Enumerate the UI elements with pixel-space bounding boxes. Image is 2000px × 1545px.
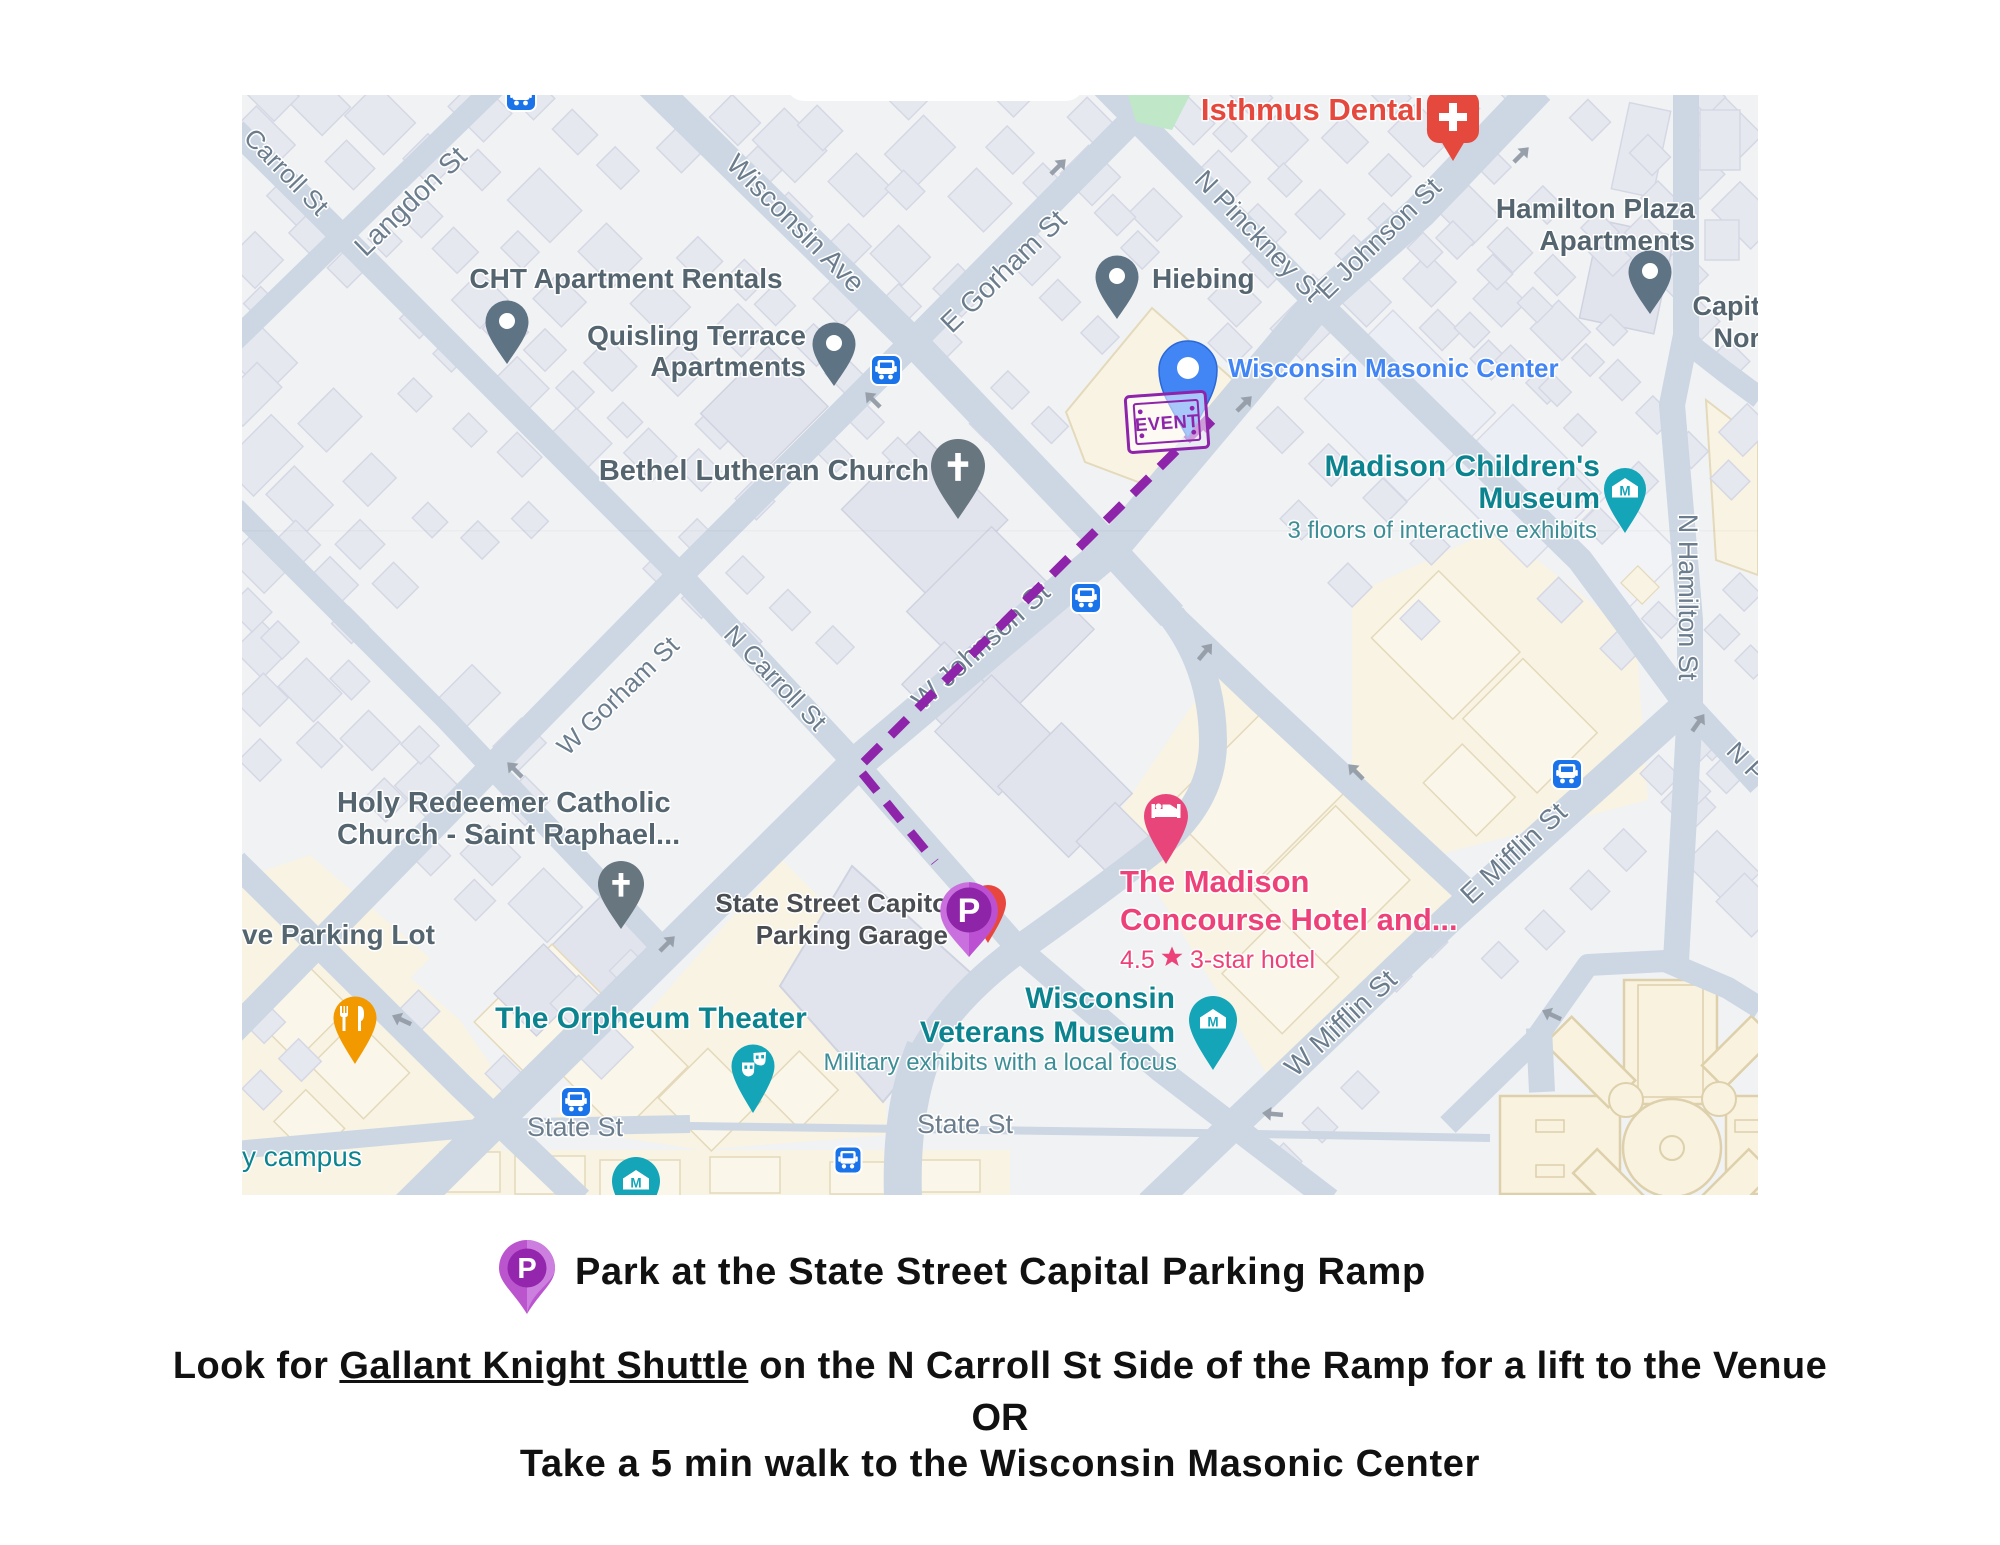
svg-text:Hamilton Plaza: Hamilton Plaza — [1496, 193, 1696, 224]
svg-text:State St: State St — [917, 1109, 1014, 1139]
svg-text:M: M — [1207, 1015, 1218, 1030]
svg-text:EVENT: EVENT — [1134, 410, 1200, 435]
svg-text:4.5: 4.5 — [1120, 946, 1155, 974]
svg-text:Holy Redeemer Catholic: Holy Redeemer Catholic — [337, 787, 671, 819]
svg-text:Wisconsin Masonic Center: Wisconsin Masonic Center — [1228, 353, 1559, 383]
svg-text:M: M — [1619, 484, 1630, 499]
svg-text:y campus: y campus — [242, 1141, 362, 1172]
svg-text:3 floors of interactive exhibi: 3 floors of interactive exhibits — [1288, 517, 1597, 544]
svg-text:Church - Saint Raphael...: Church - Saint Raphael... — [337, 819, 680, 851]
svg-text:Military exhibits with a local: Military exhibits with a local focus — [824, 1049, 1177, 1076]
svg-text:ve Parking Lot: ve Parking Lot — [242, 919, 435, 950]
svg-text:Museum: Museum — [1478, 482, 1600, 515]
svg-text:P: P — [958, 892, 981, 930]
svg-text:Capit: Capit — [1693, 291, 1759, 321]
svg-text:Apartments: Apartments — [1539, 225, 1695, 256]
svg-text:Isthmus Dental: Isthmus Dental — [1201, 95, 1423, 127]
svg-text:Quisling Terrace: Quisling Terrace — [587, 320, 806, 351]
svg-text:Veterans Museum: Veterans Museum — [920, 1016, 1175, 1049]
svg-text:Apartments: Apartments — [650, 351, 806, 382]
svg-text:Madison Children's: Madison Children's — [1325, 450, 1601, 483]
svg-text:Wisconsin: Wisconsin — [1025, 982, 1175, 1015]
svg-text:3-star hotel: 3-star hotel — [1190, 946, 1315, 974]
svg-text:M: M — [630, 1176, 641, 1191]
svg-text:Parking Garage: Parking Garage — [756, 920, 948, 950]
svg-text:Hiebing: Hiebing — [1152, 263, 1255, 294]
svg-text:The Madison: The Madison — [1120, 864, 1309, 899]
svg-text:CHT Apartment Rentals: CHT Apartment Rentals — [469, 263, 782, 294]
svg-text:P: P — [517, 1253, 536, 1285]
svg-text:The Orpheum Theater: The Orpheum Theater — [495, 1002, 807, 1035]
svg-text:Concourse Hotel and...: Concourse Hotel and... — [1120, 902, 1458, 937]
svg-text:Nor: Nor — [1714, 323, 1759, 353]
svg-text:N Hamilton St: N Hamilton St — [1673, 514, 1703, 681]
svg-text:Bethel Lutheran Church: Bethel Lutheran Church — [599, 455, 929, 487]
svg-text:State Street Capito: State Street Capito — [715, 888, 948, 918]
